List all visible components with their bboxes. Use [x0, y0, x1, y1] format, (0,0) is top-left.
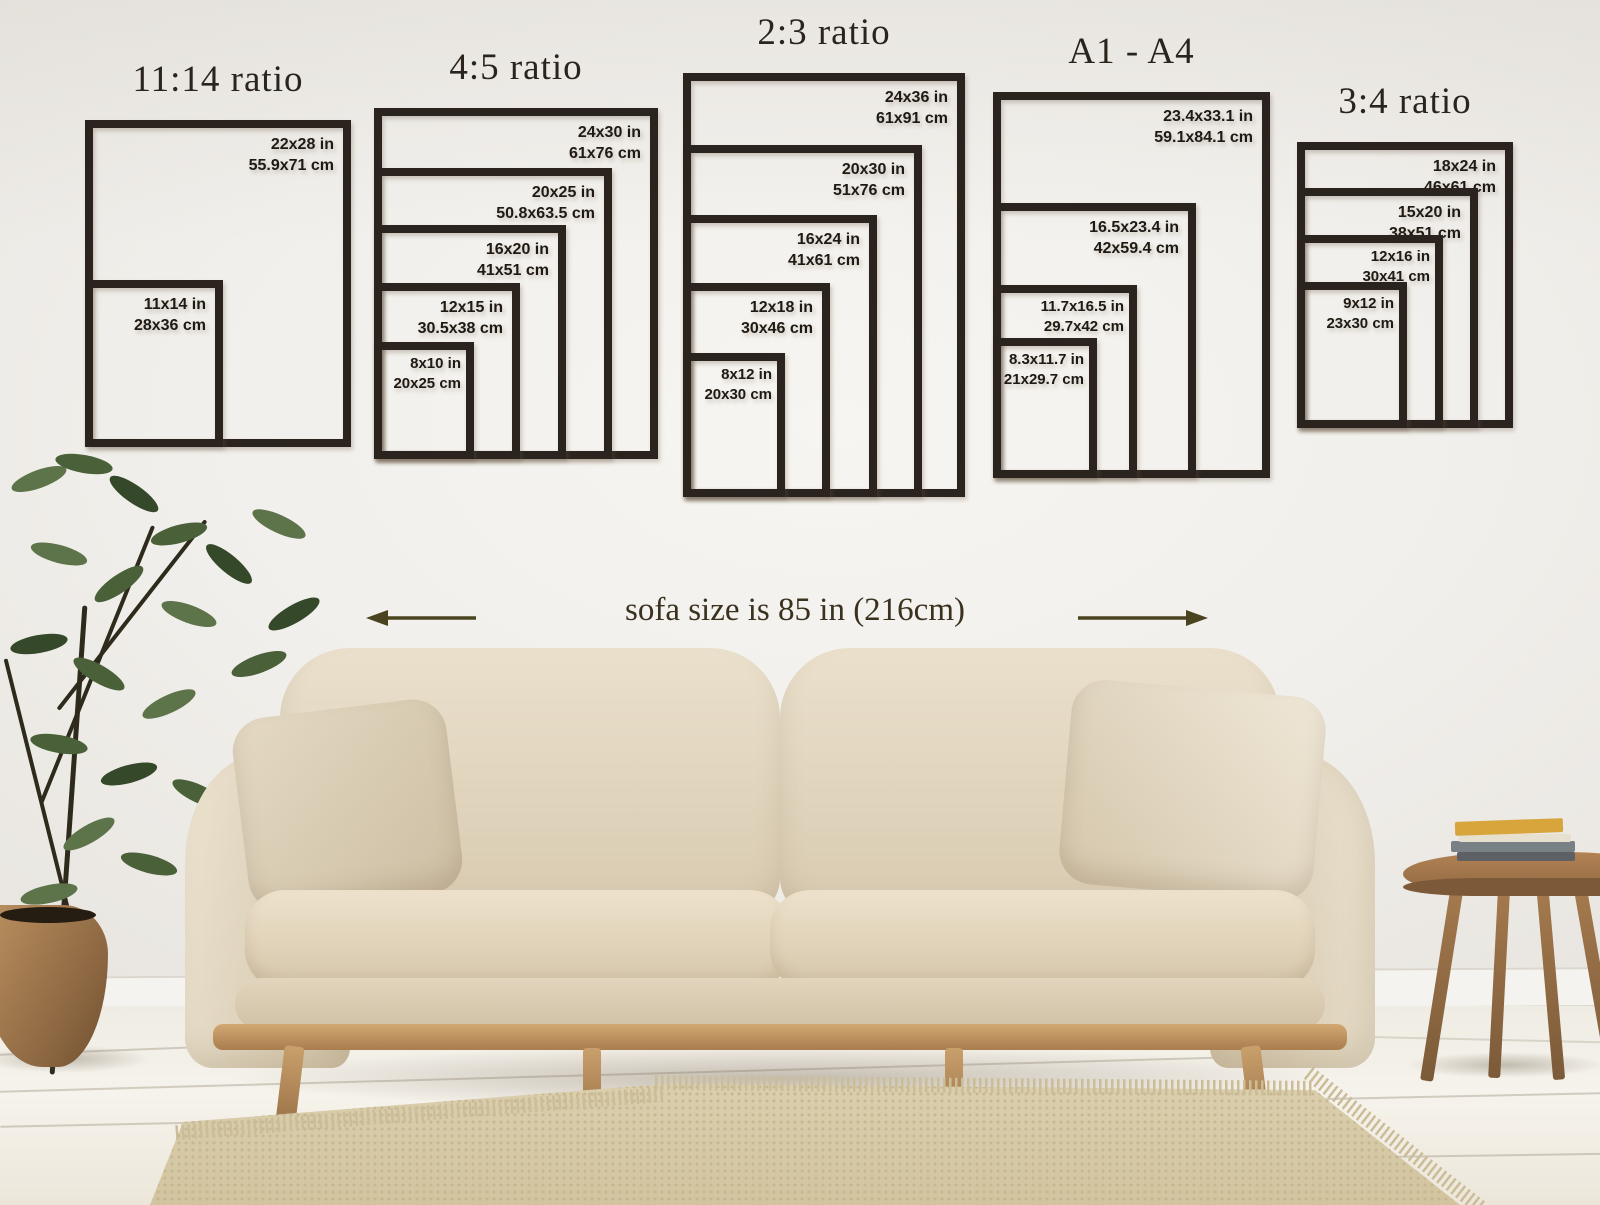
- right-arrow-icon: [1076, 604, 1208, 632]
- frame-size-label: 22x28 in 55.9x71 cm: [249, 134, 334, 176]
- ratio-group-title: 4:5 ratio: [344, 46, 688, 89]
- frame-size-label: 16x24 in 41x61 cm: [788, 229, 860, 271]
- sofa-wood-rail: [213, 1024, 1347, 1050]
- frame-size-label: 11.7x16.5 in 29.7x42 cm: [1041, 297, 1124, 337]
- left-arrow-icon: [366, 604, 478, 632]
- ratio-group-2-3: 2:3 ratio 24x36 in 61x91 cm 20x30 in 51x…: [683, 73, 965, 497]
- plant-leaf: [119, 848, 180, 880]
- book: [1459, 834, 1571, 842]
- plant-leaf: [201, 538, 257, 589]
- plant-leaf: [149, 518, 210, 550]
- ratio-group-title: 11:14 ratio: [55, 58, 381, 101]
- ratio-group-title: 2:3 ratio: [653, 11, 995, 54]
- rug-texture: [135, 1078, 1465, 1205]
- plant-leaf: [9, 461, 70, 498]
- frame-size-label: 20x30 in 51x76 cm: [833, 159, 905, 201]
- ratio-group-title: 3:4 ratio: [1267, 80, 1543, 123]
- sofa: [185, 648, 1375, 1100]
- frame-size-label: 8x12 in 20x30 cm: [704, 365, 772, 405]
- frame-box-a4: 8.3x11.7 in 21x29.7 cm: [993, 338, 1097, 478]
- ratio-group-11-14: 11:14 ratio 22x28 in 55.9x71 cm 11x14 in…: [85, 120, 351, 447]
- plant-leaf: [249, 504, 309, 545]
- frame-size-label: 8.3x11.7 in 21x29.7 cm: [1004, 350, 1084, 390]
- frame-size-label: 12x18 in 30x46 cm: [741, 297, 813, 339]
- side-table: [1395, 790, 1600, 1080]
- ratio-group-a1-a4: A1 - A4 23.4x33.1 in 59.1x84.1 cm 16.5x2…: [993, 92, 1270, 478]
- frame-size-label: 9x12 in 23x30 cm: [1326, 294, 1394, 334]
- plant-leaf: [159, 596, 220, 633]
- frame-box-8x12: 8x12 in 20x30 cm: [683, 353, 785, 497]
- room-scene: 11:14 ratio 22x28 in 55.9x71 cm 11x14 in…: [0, 0, 1600, 1205]
- frame-size-label: 24x36 in 61x91 cm: [876, 87, 948, 129]
- frame-size-label: 23.4x33.1 in 59.1x84.1 cm: [1154, 106, 1253, 148]
- frame-box-9x12: 9x12 in 23x30 cm: [1297, 282, 1407, 428]
- plant-leaf: [9, 630, 69, 658]
- rug: [135, 1078, 1465, 1205]
- sofa-size-note: sofa size is 85 in (216cm): [560, 592, 1030, 629]
- throw-pillow-left: [229, 696, 466, 916]
- frame-size-label: 12x15 in 30.5x38 cm: [418, 297, 503, 339]
- throw-pillow-right: [1057, 677, 1329, 903]
- frame-size-label: 20x25 in 50.8x63.5 cm: [496, 182, 595, 224]
- ratio-group-title: A1 - A4: [963, 30, 1300, 73]
- sofa-front-band: [235, 978, 1325, 1030]
- ratio-group-4-5: 4:5 ratio 24x30 in 61x76 cm 20x25 in 50.…: [374, 108, 658, 459]
- frame-box-8x10: 8x10 in 20x25 cm: [374, 342, 474, 459]
- plant-stem: [4, 658, 71, 911]
- frame-size-label: 8x10 in 20x25 cm: [393, 354, 461, 394]
- ratio-group-3-4: 3:4 ratio 18x24 in 46x61 cm 15x20 in 38x…: [1297, 142, 1513, 428]
- book: [1451, 841, 1575, 852]
- plant-pot: [0, 905, 108, 1067]
- frame-box-11x14: 11x14 in 28x36 cm: [85, 280, 223, 447]
- table-leg: [1488, 892, 1510, 1078]
- sofa-seat-cushion: [245, 890, 790, 990]
- plant-leaf: [264, 592, 323, 637]
- frame-size-label: 16.5x23.4 in 42x59.4 cm: [1089, 217, 1179, 259]
- sofa-seat-cushion: [770, 890, 1315, 990]
- plant-leaf: [99, 758, 160, 790]
- frame-size-label: 12x16 in 30x41 cm: [1362, 247, 1430, 287]
- plant-soil: [0, 907, 96, 923]
- table-top-edge: [1403, 878, 1600, 896]
- plant-leaf: [29, 538, 90, 570]
- frame-size-label: 24x30 in 61x76 cm: [569, 122, 641, 164]
- book: [1457, 852, 1575, 861]
- frame-size-label: 16x20 in 41x51 cm: [477, 239, 549, 281]
- plant-leaf: [105, 470, 163, 518]
- frame-size-label: 11x14 in 28x36 cm: [134, 294, 206, 336]
